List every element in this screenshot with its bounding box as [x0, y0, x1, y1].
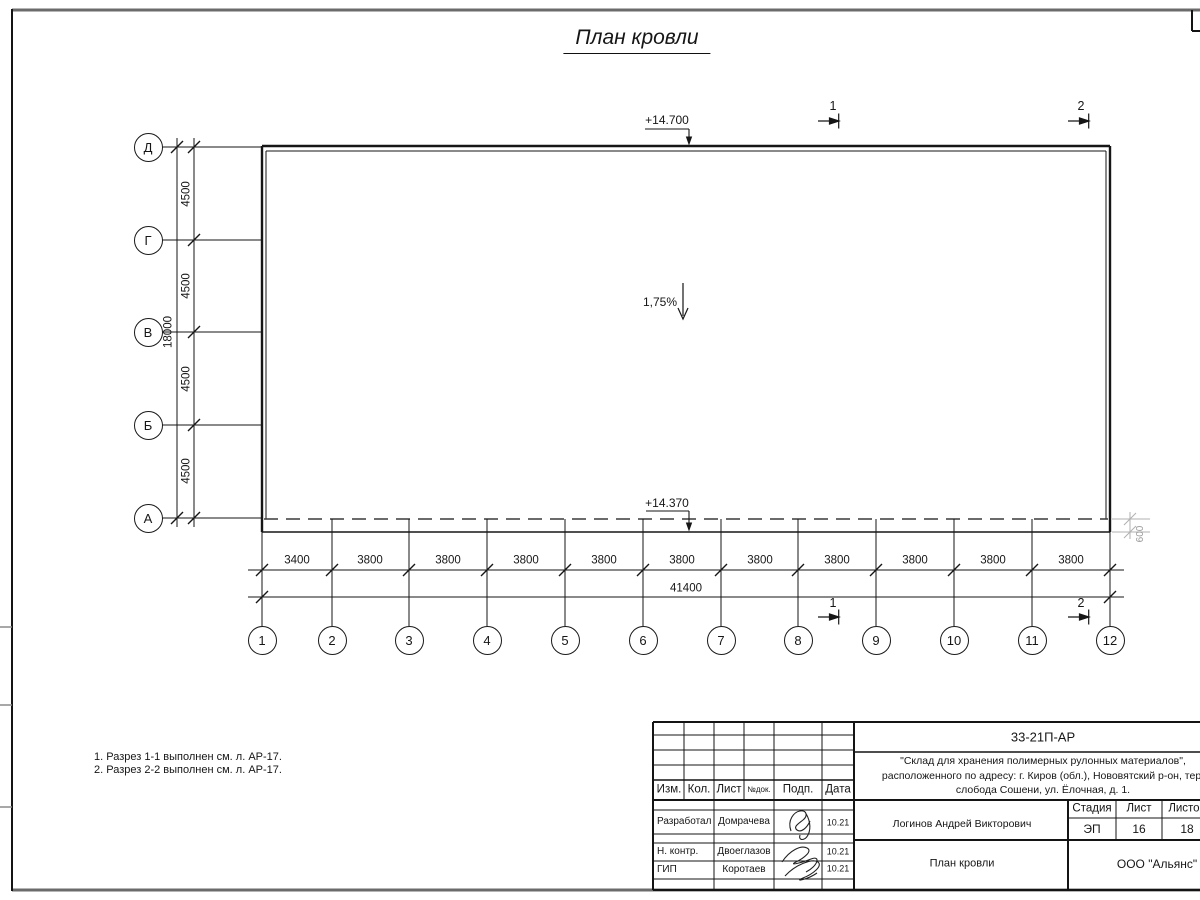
dim-label: 3800	[669, 555, 695, 567]
tb-date: 10.21	[827, 819, 850, 828]
col-axis-bubble: 9	[862, 626, 891, 655]
tb-name: Домрачева	[718, 817, 770, 827]
col-axis-bubble: 6	[629, 626, 658, 655]
fold-marks	[0, 627, 12, 807]
row-axis-bubble: А	[134, 504, 163, 533]
page-title: План кровли	[563, 26, 710, 54]
dim-label: 4500	[181, 458, 193, 484]
col-axis-bubble: 4	[473, 626, 502, 655]
dim-label: 3800	[591, 555, 617, 567]
tb-date: 10.21	[827, 848, 850, 857]
tb-role: ГИП	[657, 865, 677, 875]
slope-arrow	[678, 283, 688, 319]
row-axis-bubble: В	[134, 318, 163, 347]
row-axis-bubble: Г	[134, 226, 163, 255]
tb-sheet-value: 16	[1132, 823, 1145, 835]
tb-drawing-name: План кровли	[930, 859, 995, 870]
row-axis-bubble: Д	[134, 133, 163, 162]
elevation-leaders	[645, 129, 689, 526]
dim-label: 3800	[357, 555, 383, 567]
col-axis-bubble: 3	[395, 626, 424, 655]
note-line: 2. Разрез 2-2 выполнен см. л. АР-17.	[94, 764, 282, 776]
tb-project-line: слобода Сошени, ул. Ёлочная, д. 1.	[956, 785, 1130, 796]
tb-approver: Логинов Андрей Викторович	[893, 819, 1032, 830]
drawing-sheet: План кровли Д Г В Б А 1 2 3 4 5 6 7 8 9 …	[0, 0, 1200, 900]
tb-company: ООО "Альянс"	[1117, 858, 1197, 870]
tb-date: 10.21	[827, 865, 850, 874]
tb-role: Н. контр.	[657, 847, 698, 857]
dim-label: 3800	[435, 555, 461, 567]
tb-role: Разработал	[657, 817, 711, 827]
section-label: 2	[1078, 100, 1085, 113]
dim-label: 3800	[902, 555, 928, 567]
tb-stage-value: ЭП	[1083, 823, 1100, 835]
overhang-dim-label: 600	[1136, 526, 1146, 543]
tb-project-line: "Склад для хранения полимерных рулонных …	[900, 756, 1186, 767]
col-axis-bubble: 12	[1096, 626, 1125, 655]
dim-label: 4500	[181, 273, 193, 299]
tb-project-line: расположенного по адресу: г. Киров (обл.…	[882, 771, 1200, 782]
col-axis-bubble: 8	[784, 626, 813, 655]
col-axis-bubble: 2	[318, 626, 347, 655]
row-axis-bubble: Б	[134, 411, 163, 440]
col-axis-bubble: 1	[248, 626, 277, 655]
dim-label: 4500	[181, 181, 193, 207]
elevation-arrow-top	[686, 137, 692, 146]
tb-sheet-label: Лист	[1127, 803, 1152, 815]
elevation-label-bottom: +14.370	[645, 497, 689, 509]
section-label: 1	[830, 597, 837, 610]
elevation-label-top: +14.700	[645, 114, 689, 126]
dim-label: 3800	[824, 555, 850, 567]
dim-label: 3800	[1058, 555, 1084, 567]
row-axes	[162, 138, 262, 527]
tb-col-ndok: №док.	[747, 786, 770, 794]
tb-col-list: Лист	[717, 784, 742, 796]
slope-label: 1,75%	[643, 296, 677, 308]
tb-stage-label: Стадия	[1072, 803, 1111, 815]
col-axis-bubble: 7	[707, 626, 736, 655]
tb-col-kol: Кол.	[688, 784, 711, 796]
tb-name: Двоеглазов	[717, 847, 770, 857]
dim-label: 3400	[284, 555, 310, 567]
tb-name: Коротаев	[722, 865, 765, 875]
tb-col-data: Дата	[825, 784, 850, 796]
elevation-arrow-bottom	[686, 523, 692, 532]
tb-col-izm: Изм.	[657, 784, 682, 796]
roof-outline	[262, 146, 1110, 532]
section-label: 1	[830, 100, 837, 113]
signature	[782, 811, 819, 880]
dim-label: 4500	[181, 366, 193, 392]
dim-label: 3800	[747, 555, 773, 567]
col-axis-bubble: 11	[1018, 626, 1047, 655]
dim-label: 3800	[980, 555, 1006, 567]
dim-total-label: 41400	[670, 583, 702, 595]
dim-total-label: 18000	[163, 316, 175, 348]
col-axes	[248, 519, 1124, 626]
tb-sheets-value: 18	[1180, 823, 1193, 835]
note-line: 1. Разрез 1-1 выполнен см. л. АР-17.	[94, 751, 282, 763]
tb-sheets-label: Листов	[1168, 803, 1200, 815]
section-label: 2	[1078, 597, 1085, 610]
tb-doc-code: 33-21П-АР	[1011, 731, 1075, 744]
tb-col-podp: Подп.	[783, 784, 814, 796]
dim-label: 3800	[513, 555, 539, 567]
col-axis-bubble: 10	[940, 626, 969, 655]
col-axis-bubble: 5	[551, 626, 580, 655]
